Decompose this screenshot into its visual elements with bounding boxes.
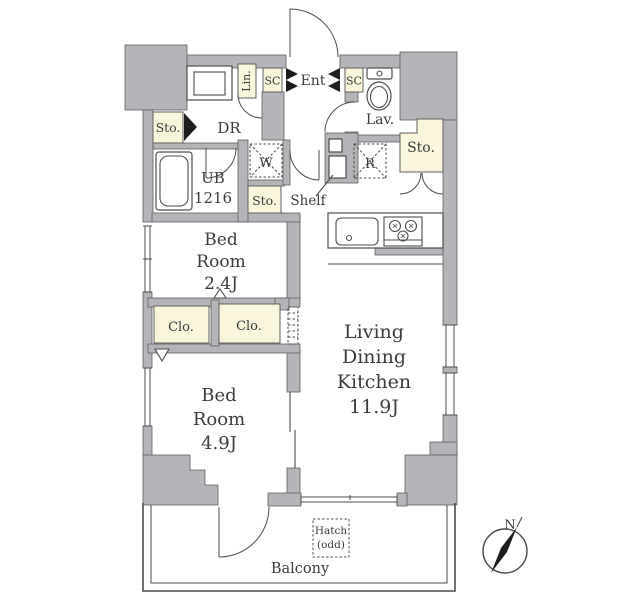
compass: N [483,517,527,573]
compass-north-label: N [504,518,515,533]
bedroom-small-label-1: Bed [204,230,238,250]
bathtub [156,152,192,210]
unit-bath-label-2: 1216 [194,189,232,207]
storage-right-double-doors [400,173,443,194]
storage-left-label: Sto. [156,120,181,135]
ldk-label-1: Living [344,321,404,343]
floorplan-canvas: N Lin. SC Ent SC Lav. Sto. Sto. Sto. DR … [0,0,629,615]
washer-label: W [259,156,273,171]
lavatory-door [325,102,355,132]
shelf-label: Shelf [290,193,326,209]
unit-bath-label-1: UB [201,169,225,187]
ladder-step-hatch [288,307,298,344]
floorplan-page: N Lin. SC Ent SC Lav. Sto. Sto. Sto. DR … [0,0,629,615]
closet-right-label: Clo. [236,319,262,334]
refrigerator-label: R [365,157,376,172]
shelf-fixture [316,139,346,196]
balcony-outline [143,503,455,591]
dr-counter [187,66,232,100]
bedroom-ldk-sliding-door [290,392,295,468]
lavatory-label: Lav. [366,112,394,128]
balcony-door [219,507,269,557]
storage-middle-label: Sto. [252,193,277,208]
storage-right-label: Sto. [407,140,435,156]
ldk-door [290,150,319,180]
compass-needle [491,527,517,573]
bedroom-large-label-2: Room [193,409,245,430]
storage-left-door [184,113,197,141]
hatch-label-2: (odd) [317,539,345,551]
ldk-label-3: Kitchen [337,371,411,393]
shoe-closet-right-label: SC [346,75,362,88]
shoe-closet-left-label: SC [265,75,281,88]
ldk-label-4: 11.9J [349,396,399,418]
dressing-room-label: DR [217,119,241,137]
closet-left-label: Clo. [168,320,194,335]
hatch-label-1: Hatch [315,525,348,537]
bedroom-large-label-1: Bed [201,385,236,406]
toilet [367,68,392,110]
ldk-label-2: Dining [342,346,406,368]
entrance-label: Ent [301,73,326,89]
bedroom-large-label-3: 4.9J [201,433,237,454]
kitchen-counter [328,213,443,264]
bedroom-small-label-3: 2.4J [204,274,238,294]
bedroom-small-label-2: Room [196,252,245,272]
linen-closet-label: Lin. [240,70,253,91]
balcony-label: Balcony [271,561,330,577]
